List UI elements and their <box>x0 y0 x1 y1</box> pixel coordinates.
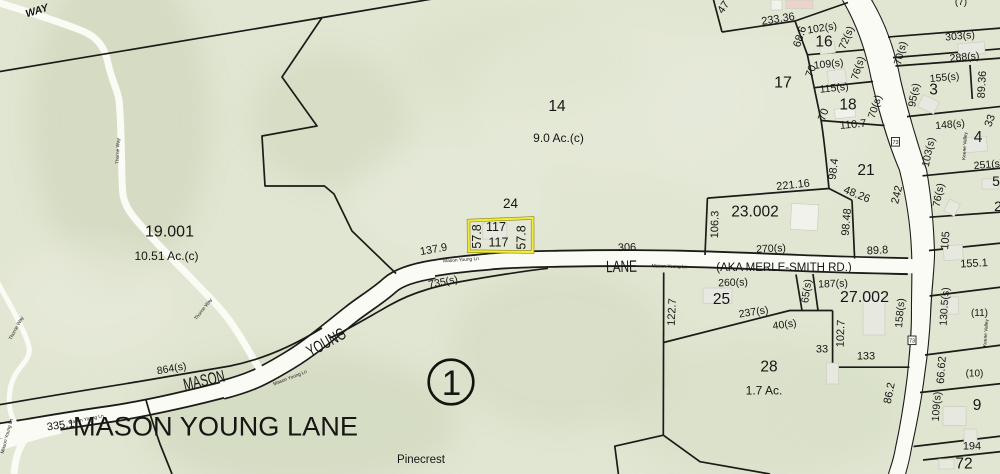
svg-text:73: 73 <box>909 339 915 345</box>
svg-text:57.8: 57.8 <box>470 224 484 248</box>
svg-text:73: 73 <box>892 140 898 146</box>
svg-text:260(s): 260(s) <box>718 276 748 289</box>
svg-text:Thorne Way: Thorne Way <box>115 137 122 164</box>
svg-text:106.3: 106.3 <box>709 211 721 239</box>
svg-text:9.0 Ac.(c): 9.0 Ac.(c) <box>533 131 584 145</box>
svg-text:303(s): 303(s) <box>945 29 976 44</box>
svg-text:155(s): 155(s) <box>929 71 960 86</box>
svg-text:2: 2 <box>994 198 1000 214</box>
svg-text:155.1: 155.1 <box>960 257 988 270</box>
svg-text:16: 16 <box>815 34 832 51</box>
svg-text:21: 21 <box>857 162 874 179</box>
svg-text:109(s): 109(s) <box>930 391 944 422</box>
svg-text:89.8: 89.8 <box>867 244 889 257</box>
svg-text:270(s): 270(s) <box>756 242 786 256</box>
svg-text:148(s): 148(s) <box>935 118 966 133</box>
svg-text:1: 1 <box>442 364 461 403</box>
svg-text:102.7: 102.7 <box>835 320 848 348</box>
svg-text:(7): (7) <box>955 0 967 8</box>
svg-text:117: 117 <box>486 220 506 234</box>
svg-text:17: 17 <box>774 75 792 92</box>
svg-text:LANE: LANE <box>606 258 637 277</box>
svg-text:288(s): 288(s) <box>949 50 980 65</box>
svg-text:Mason Young Ln: Mason Young Ln <box>652 263 688 270</box>
svg-text:4: 4 <box>974 129 983 146</box>
svg-text:MASON YOUNG LANE: MASON YOUNG LANE <box>73 412 358 442</box>
svg-text:(11): (11) <box>971 308 988 319</box>
svg-text:5: 5 <box>992 173 1000 189</box>
svg-text:(AKA MERLE-SMITH RD.): (AKA MERLE-SMITH RD.) <box>716 262 852 274</box>
svg-text:9: 9 <box>973 397 982 414</box>
svg-text:117: 117 <box>489 236 509 250</box>
svg-text:19.001: 19.001 <box>145 224 194 241</box>
svg-text:18: 18 <box>839 97 856 114</box>
svg-text:23.002: 23.002 <box>731 204 778 221</box>
svg-text:1.7 Ac.: 1.7 Ac. <box>746 384 783 398</box>
svg-text:33: 33 <box>816 343 828 355</box>
svg-text:133: 133 <box>857 350 875 362</box>
svg-text:Pinecrest: Pinecrest <box>397 454 446 466</box>
svg-text:122.7: 122.7 <box>666 298 679 326</box>
svg-text:24: 24 <box>503 196 519 211</box>
svg-text:(10): (10) <box>966 369 984 380</box>
svg-text:66.62: 66.62 <box>935 356 949 384</box>
svg-text:306: 306 <box>618 241 637 254</box>
svg-text:14: 14 <box>548 98 566 115</box>
svg-text:25: 25 <box>713 291 730 308</box>
svg-text:10.51 Ac.(c): 10.51 Ac.(c) <box>134 249 198 263</box>
svg-text:72: 72 <box>955 456 972 473</box>
svg-text:105: 105 <box>939 231 953 250</box>
svg-text:251(s): 251(s) <box>973 158 1000 173</box>
svg-text:27.002: 27.002 <box>840 289 889 306</box>
svg-text:158(s): 158(s) <box>893 298 908 329</box>
svg-text:187(s): 187(s) <box>818 277 848 290</box>
svg-text:57.8: 57.8 <box>514 225 528 249</box>
svg-text:89.36: 89.36 <box>976 70 989 98</box>
svg-text:98.48: 98.48 <box>840 208 854 236</box>
svg-text:28: 28 <box>760 359 777 376</box>
svg-text:194: 194 <box>963 441 981 453</box>
svg-text:110.7: 110.7 <box>839 118 867 132</box>
